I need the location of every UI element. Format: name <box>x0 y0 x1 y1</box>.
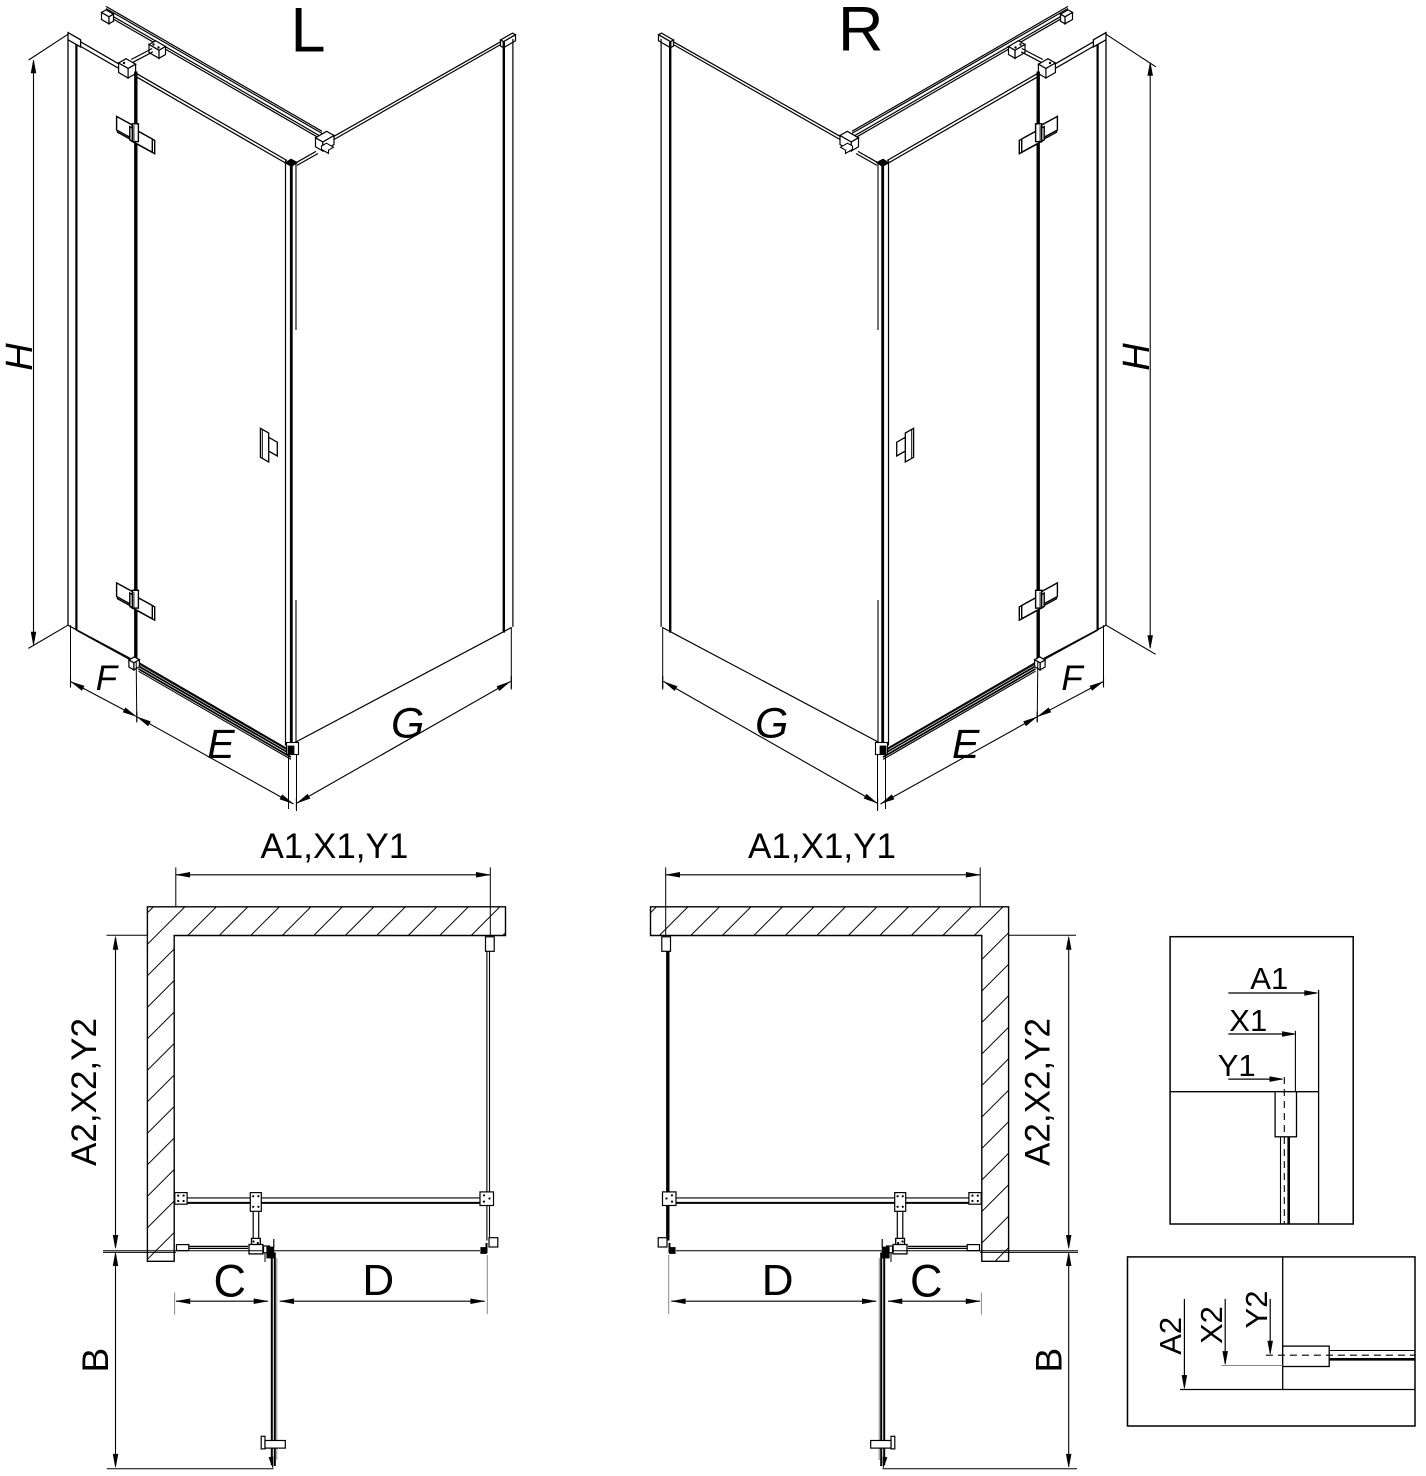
svg-text:B: B <box>1029 1348 1070 1373</box>
svg-text:H: H <box>1116 343 1158 371</box>
svg-text:Y1: Y1 <box>1218 1048 1256 1083</box>
svg-text:F: F <box>96 659 120 698</box>
svg-text:A1,X1,Y1: A1,X1,Y1 <box>260 827 408 866</box>
svg-text:H: H <box>0 343 41 371</box>
svg-text:A2,X2,Y2: A2,X2,Y2 <box>1019 1018 1058 1166</box>
svg-text:G: G <box>755 700 788 748</box>
svg-text:X1: X1 <box>1229 1003 1267 1038</box>
svg-text:A2: A2 <box>1153 1317 1188 1355</box>
svg-text:D: D <box>762 1256 794 1305</box>
svg-text:C: C <box>910 1256 943 1307</box>
svg-text:C: C <box>214 1256 247 1307</box>
svg-text:A1,X1,Y1: A1,X1,Y1 <box>748 827 896 866</box>
svg-text:L: L <box>291 0 326 66</box>
svg-text:E: E <box>952 721 980 767</box>
svg-text:E: E <box>207 721 235 767</box>
svg-text:R: R <box>838 0 884 65</box>
svg-text:X2: X2 <box>1194 1306 1229 1344</box>
svg-text:G: G <box>391 700 424 748</box>
svg-text:Y2: Y2 <box>1239 1291 1274 1329</box>
svg-text:F: F <box>1061 659 1085 698</box>
svg-text:A1: A1 <box>1250 961 1288 996</box>
svg-text:A2,X2,Y2: A2,X2,Y2 <box>65 1018 104 1166</box>
svg-text:D: D <box>362 1256 394 1305</box>
svg-text:B: B <box>75 1348 116 1373</box>
